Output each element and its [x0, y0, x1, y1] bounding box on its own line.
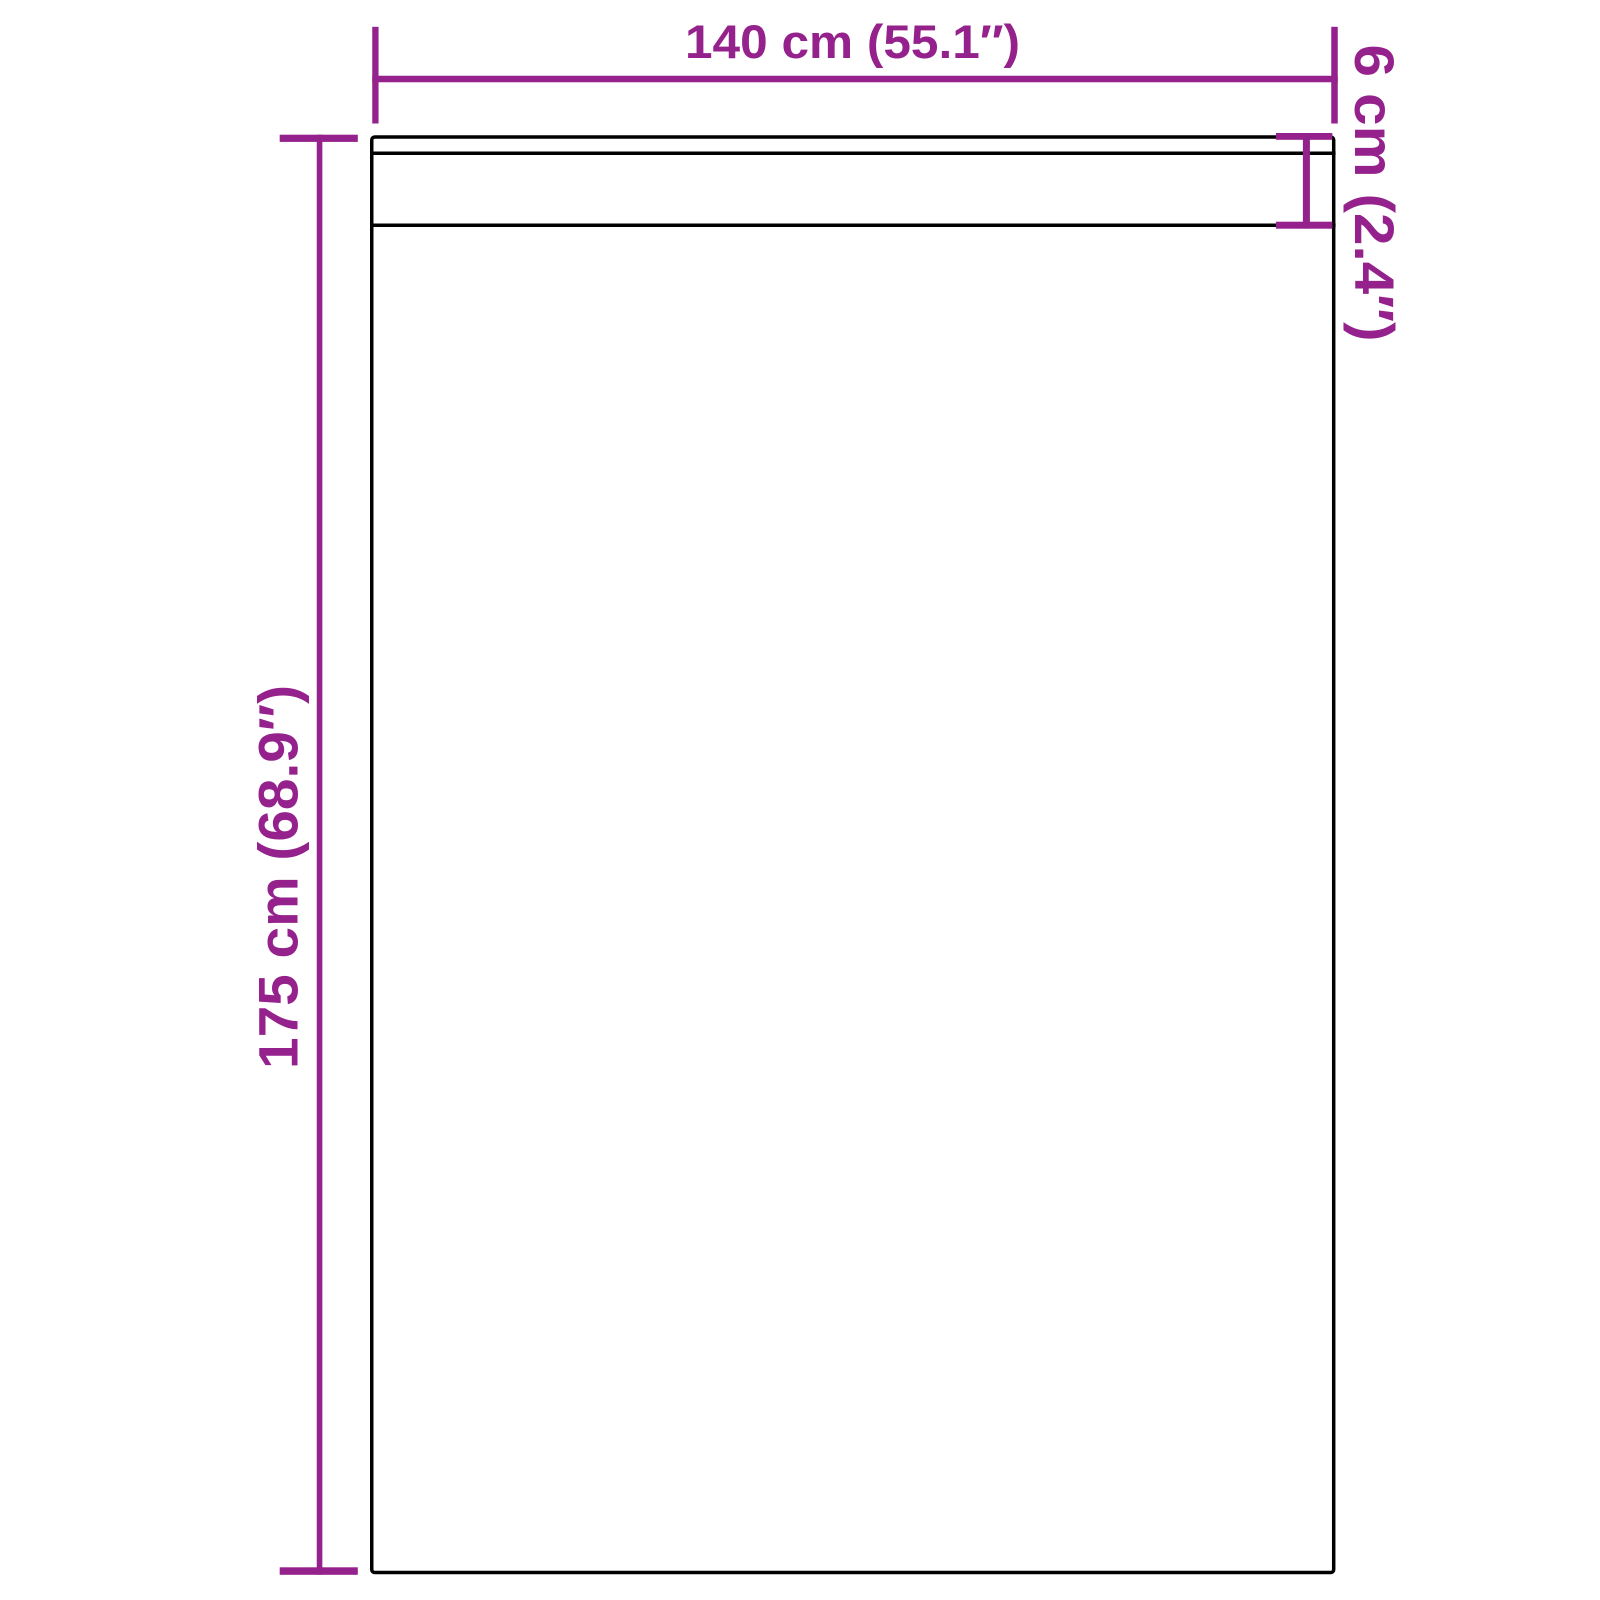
svg-text:6 cm (2.4″): 6 cm (2.4″)	[1343, 45, 1406, 342]
svg-text:175 cm (68.9″): 175 cm (68.9″)	[247, 685, 310, 1069]
svg-text:140 cm (55.1″): 140 cm (55.1″)	[685, 15, 1020, 68]
